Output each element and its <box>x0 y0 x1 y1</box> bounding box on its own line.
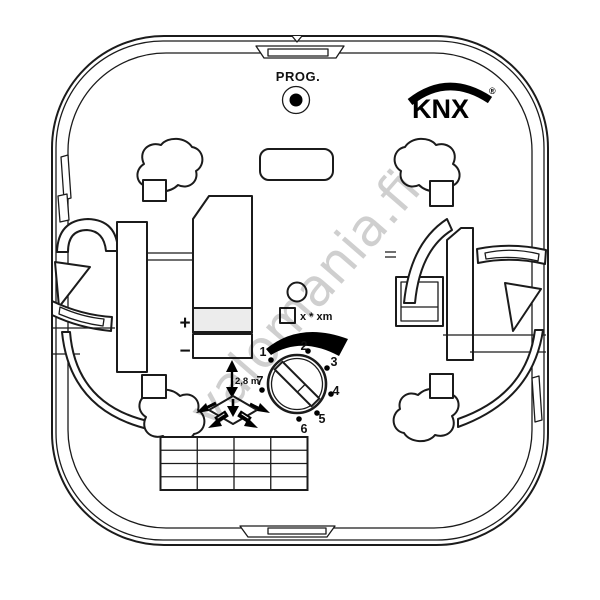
dial-dot-3 <box>324 365 330 371</box>
right-slider-bar <box>447 228 473 360</box>
sensor-block-top-right <box>430 181 453 206</box>
knx-registered-mark: ® <box>489 86 496 96</box>
dial-position-3: 3 <box>331 355 338 369</box>
dial-position-4: 4 <box>333 384 340 398</box>
prog-button-icon <box>290 94 303 107</box>
area-symbol-icon <box>280 308 295 323</box>
detection-area <box>196 396 270 428</box>
data-grid <box>161 437 308 490</box>
label-plate <box>260 149 333 180</box>
left-dome <box>57 219 118 252</box>
dial-dot-7 <box>259 387 265 393</box>
area-formula-label: x * xm <box>300 311 333 323</box>
dial-dot-6 <box>296 416 302 422</box>
bus-terminal: + − <box>179 196 252 362</box>
presence-detector-drawing: + − PROG. KNX ® x * xm <box>0 0 600 600</box>
mounting-height-label: 2,8 m <box>235 376 259 387</box>
right-window <box>396 277 443 326</box>
left-connector <box>147 253 194 260</box>
plus-label: + <box>179 313 190 334</box>
dial-position-5: 5 <box>319 412 326 426</box>
height-arrow-up-icon <box>226 360 238 372</box>
dial-dot-1 <box>268 357 274 363</box>
right-wedge <box>505 283 541 331</box>
sensor-block-bottom-left <box>142 375 166 398</box>
height-indicator: 2,8 m <box>226 360 259 398</box>
dial-position-2: 2 <box>301 339 308 353</box>
left-edge-clip <box>61 155 71 200</box>
right-edge-clip <box>532 376 542 422</box>
rotary-dial: 1 2 3 4 5 6 7 <box>257 339 340 436</box>
status-led-icon <box>288 283 307 302</box>
terminal-band-plus <box>193 308 252 332</box>
left-slider-bar <box>117 222 147 372</box>
sensor-block-bottom-right <box>430 374 453 398</box>
dial-position-6: 6 <box>301 422 308 436</box>
sensor-block-top-left <box>143 180 166 201</box>
prog-label: PROG. <box>276 69 320 84</box>
terminal-body <box>193 196 252 308</box>
right-ribbon <box>477 246 546 264</box>
left-wedge <box>55 262 90 307</box>
area-indicator: x * xm <box>280 308 333 323</box>
arrow-right-icon <box>257 403 270 413</box>
dial-position-1: 1 <box>260 345 267 359</box>
device-diagram: + − PROG. KNX ® x * xm <box>0 0 600 600</box>
minus-label: − <box>179 341 190 362</box>
knx-logo-text: KNX <box>412 94 469 124</box>
prog-section: PROG. <box>276 69 320 114</box>
knx-logo: KNX ® <box>410 86 496 124</box>
terminal-band-minus <box>193 334 252 358</box>
left-edge-clip-lower <box>58 194 69 222</box>
